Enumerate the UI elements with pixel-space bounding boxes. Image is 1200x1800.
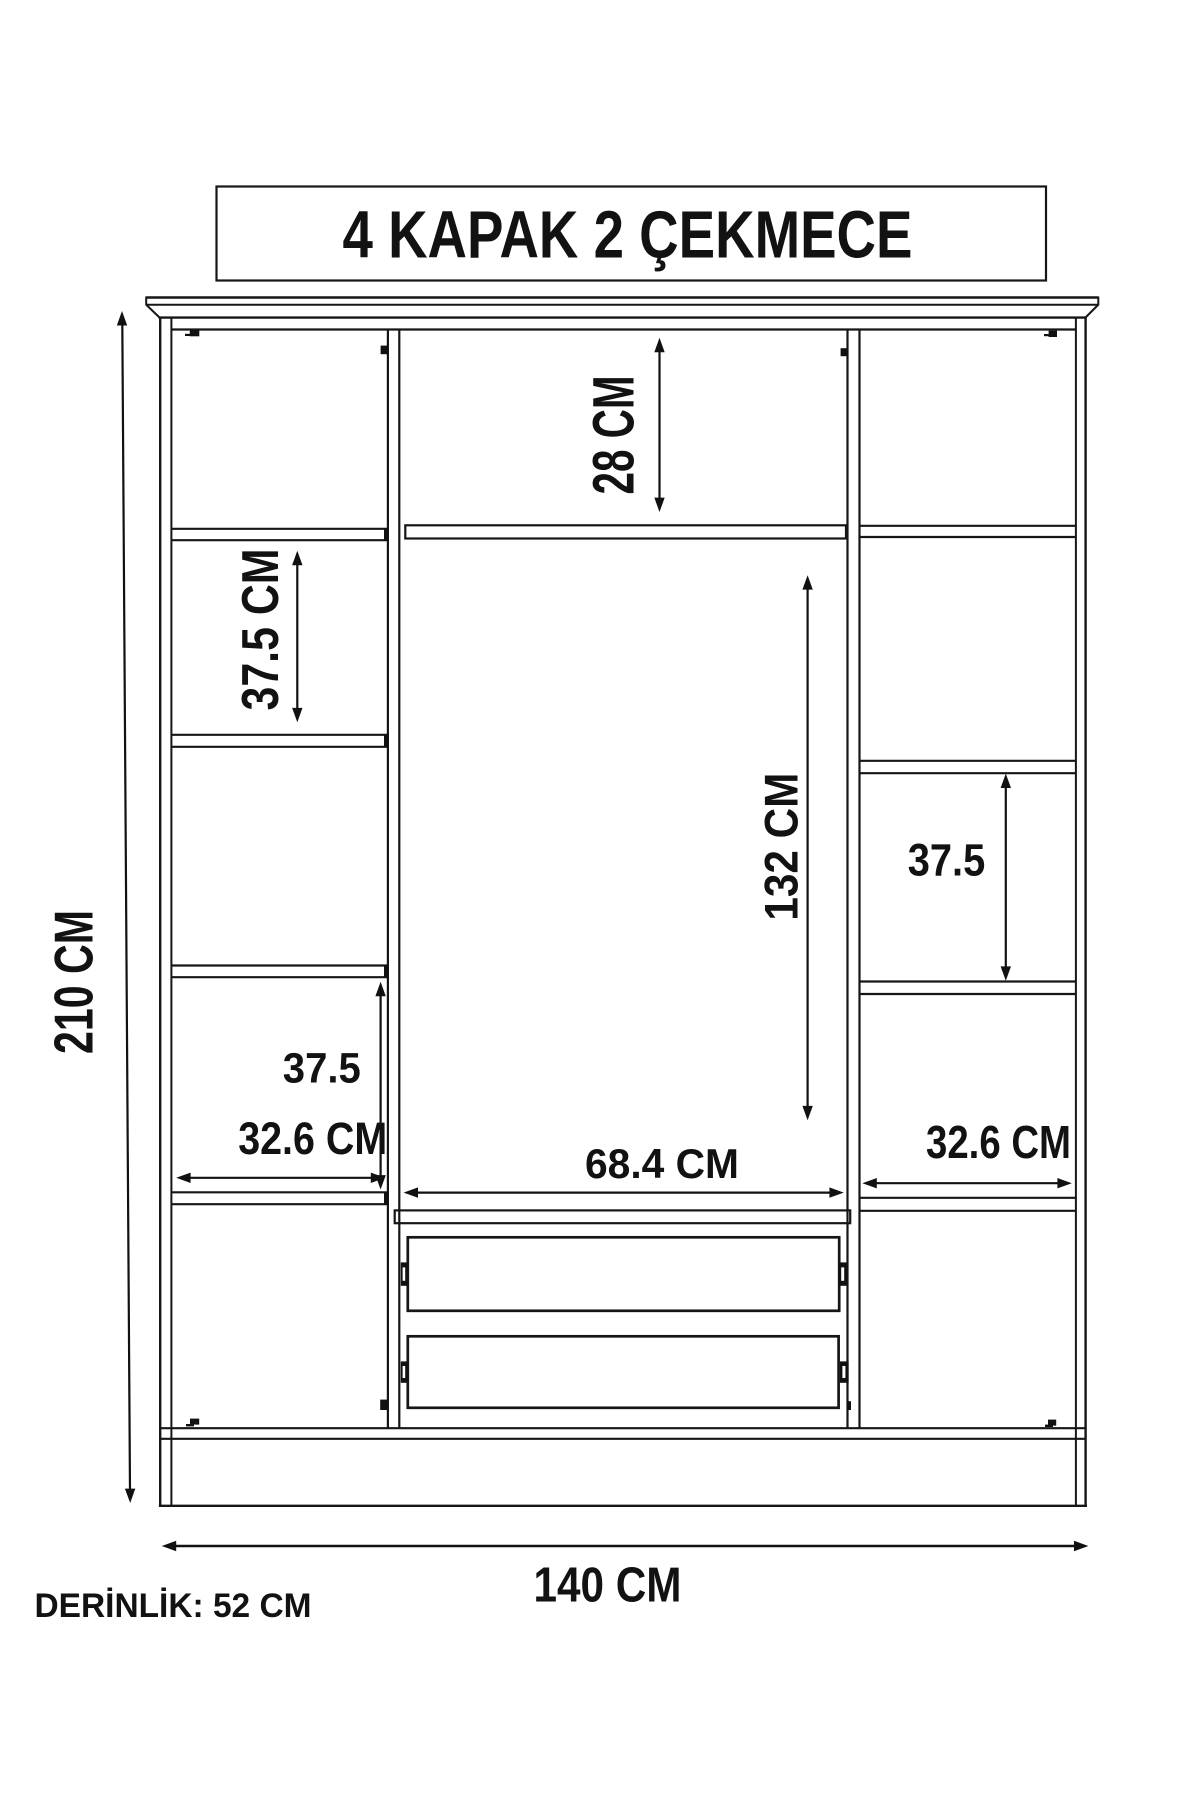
svg-text:210 CM: 210 CM <box>43 910 105 1054</box>
svg-text:37.5 CM: 37.5 CM <box>232 549 290 711</box>
svg-text:37.5: 37.5 <box>908 835 986 886</box>
svg-text:37.5: 37.5 <box>283 1045 361 1093</box>
svg-text:140 CM: 140 CM <box>534 1559 682 1613</box>
svg-text:DERİNLİK: 52 CM: DERİNLİK: 52 CM <box>35 1587 312 1625</box>
svg-text:4 KAPAK 2 ÇEKMECE: 4 KAPAK 2 ÇEKMECE <box>343 199 913 273</box>
svg-text:68.4 CM: 68.4 CM <box>585 1140 739 1187</box>
svg-text:32.6 CM: 32.6 CM <box>926 1116 1071 1168</box>
svg-text:28 CM: 28 CM <box>581 376 646 495</box>
svg-text:32.6 CM: 32.6 CM <box>238 1113 387 1164</box>
svg-text:132 CM: 132 CM <box>756 773 809 921</box>
